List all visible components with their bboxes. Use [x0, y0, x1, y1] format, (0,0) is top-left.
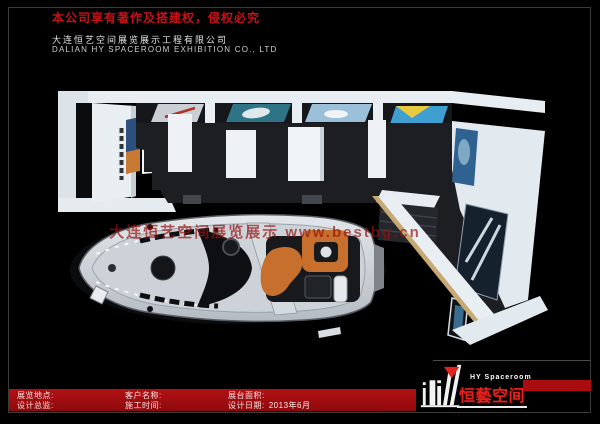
field-design-director: 设计总监:	[17, 401, 54, 411]
display-panel-1	[168, 114, 192, 172]
info-bar: 展览地点: 设计总监: 客户名称: 施工时间: 展台面积: 设计日期:2013年…	[9, 389, 416, 411]
field-design-date: 设计日期:2013年6月	[228, 401, 310, 411]
field-exhibition-location: 展览地点:	[17, 391, 54, 401]
display-panel-2	[226, 130, 256, 178]
red-accent-bar	[523, 380, 591, 391]
swim-platform	[374, 244, 384, 292]
left-room-bottom-wall	[58, 198, 176, 212]
wall-banner-left-lower	[126, 149, 140, 174]
title-block-divider	[433, 360, 591, 361]
watermark-text: 大连恒艺空间展览展示 www.bestbg.cn	[109, 223, 421, 241]
info-col-booth: 展台面积: 设计日期:2013年6月	[228, 391, 310, 410]
info-col-client: 客户名称: 施工时间:	[125, 391, 162, 410]
poster-3-graphic	[324, 110, 348, 118]
field-client-name: 客户名称:	[125, 391, 162, 401]
design-date-value: 2013年6月	[269, 401, 311, 410]
floor-block-1	[183, 195, 201, 204]
transom-door	[334, 276, 347, 302]
bow-hatch	[151, 256, 175, 280]
pilaster-2	[292, 103, 302, 123]
design-date-label: 设计日期:	[228, 401, 265, 410]
display-panel-3	[288, 127, 324, 181]
field-construction-time: 施工时间:	[125, 401, 162, 411]
cleat-bottom	[147, 306, 153, 312]
field-booth-area: 展台面积:	[228, 391, 310, 401]
floor-block-2	[302, 195, 322, 204]
logo-underline	[457, 406, 527, 408]
display-column	[368, 120, 386, 178]
engine-hatch	[305, 276, 331, 298]
banner-right-graphic	[458, 139, 470, 165]
left-corridor-shadow	[76, 103, 92, 198]
presentation-sheet: 本公司享有著作及搭建权，侵权必究 大连恒艺空间展览展示工程有限公司 DALIAN…	[0, 0, 600, 424]
cockpit-table	[321, 247, 332, 258]
logo-name-cn: 恒藝空间	[459, 382, 525, 406]
wall-posters	[151, 103, 448, 124]
cabin-ring	[223, 239, 239, 255]
pilaster-1	[205, 103, 215, 123]
info-col-location: 展览地点: 设计总监:	[17, 391, 54, 410]
floor-cable-cover	[318, 327, 341, 338]
panel-3-shade	[320, 127, 324, 181]
anchor-fitting	[108, 264, 116, 272]
